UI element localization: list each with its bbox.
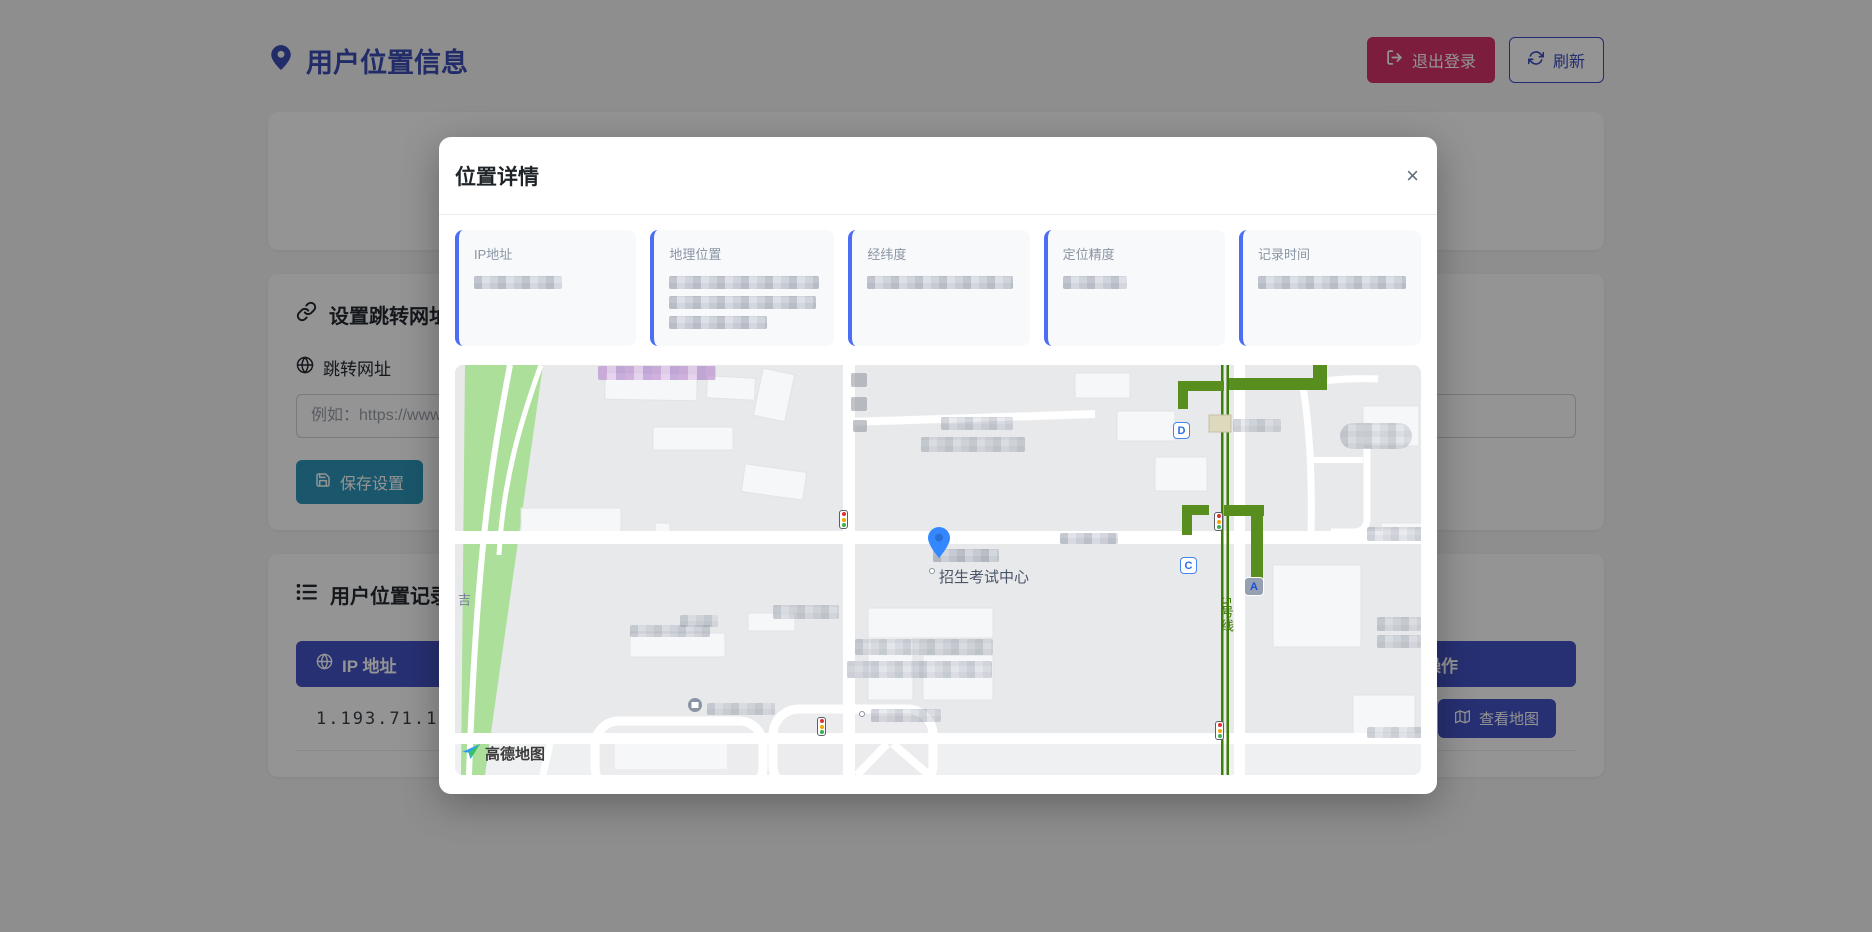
blurred-map-marker — [851, 397, 867, 411]
subway-line-label: 5号线 — [1217, 597, 1236, 633]
street-name-label: 吉 — [455, 593, 473, 606]
detail-fields: IP地址 地理位置 经纬度 定位精度 记录时间 — [455, 230, 1421, 346]
blurred-road-name — [1060, 533, 1118, 544]
field-card-ip: IP地址 — [455, 230, 636, 346]
blurred-label — [941, 417, 1013, 430]
blurred-label — [1377, 617, 1421, 631]
location-detail-modal: 位置详情 × IP地址 地理位置 经纬度 定位精度 记录时间 — [439, 137, 1437, 794]
modal-header: 位置详情 × — [439, 137, 1437, 215]
blurred-map-marker — [853, 420, 867, 432]
amap-paperplane-icon — [461, 741, 481, 765]
blurred-label — [1367, 527, 1421, 541]
poi-dot — [859, 711, 865, 717]
metro-exit-d: D — [1173, 422, 1190, 439]
blurred-label — [630, 625, 710, 637]
poi-label-exam-center: 招生考试中心 — [939, 566, 1029, 587]
traffic-light-icon — [1215, 721, 1224, 740]
metro-exit-c: C — [1180, 557, 1197, 574]
blurred-label — [855, 639, 993, 655]
blurred-label — [773, 605, 839, 619]
field-card-geolocation: 地理位置 — [650, 230, 834, 346]
blurred-label — [871, 709, 941, 722]
blurred-label — [1233, 419, 1281, 432]
traffic-light-icon — [1214, 512, 1223, 531]
blurred-map-marker — [851, 373, 867, 387]
blurred-label — [1367, 727, 1421, 738]
blurred-poi — [1340, 423, 1412, 449]
close-icon[interactable]: × — [1406, 165, 1419, 187]
metro-station-box — [1209, 415, 1231, 432]
blurred-label — [598, 366, 716, 380]
museum-poi-icon — [687, 697, 703, 718]
blurred-label — [1377, 635, 1421, 648]
map-provider-logo: 高德地图 — [461, 741, 545, 765]
modal-title: 位置详情 — [455, 161, 539, 191]
blurred-label — [921, 437, 1025, 452]
redacted-value — [474, 276, 621, 289]
metro-exit-a: A — [1244, 577, 1264, 596]
redacted-value — [1258, 276, 1406, 289]
blurred-label — [707, 703, 775, 715]
redacted-value — [669, 276, 819, 329]
field-card-accuracy: 定位精度 — [1044, 230, 1225, 346]
field-card-coordinates: 经纬度 — [848, 230, 1029, 346]
redacted-value — [867, 276, 1014, 289]
map-canvas[interactable]: 招生考试中心 D C A 5号线 吉 高德地图 — [455, 365, 1421, 775]
blurred-label — [847, 661, 992, 678]
redacted-value — [1063, 276, 1210, 289]
field-card-timestamp: 记录时间 — [1239, 230, 1421, 346]
location-pin-marker — [926, 525, 952, 564]
traffic-light-icon — [817, 717, 826, 736]
poi-dot — [929, 568, 935, 574]
traffic-light-icon — [839, 510, 848, 529]
